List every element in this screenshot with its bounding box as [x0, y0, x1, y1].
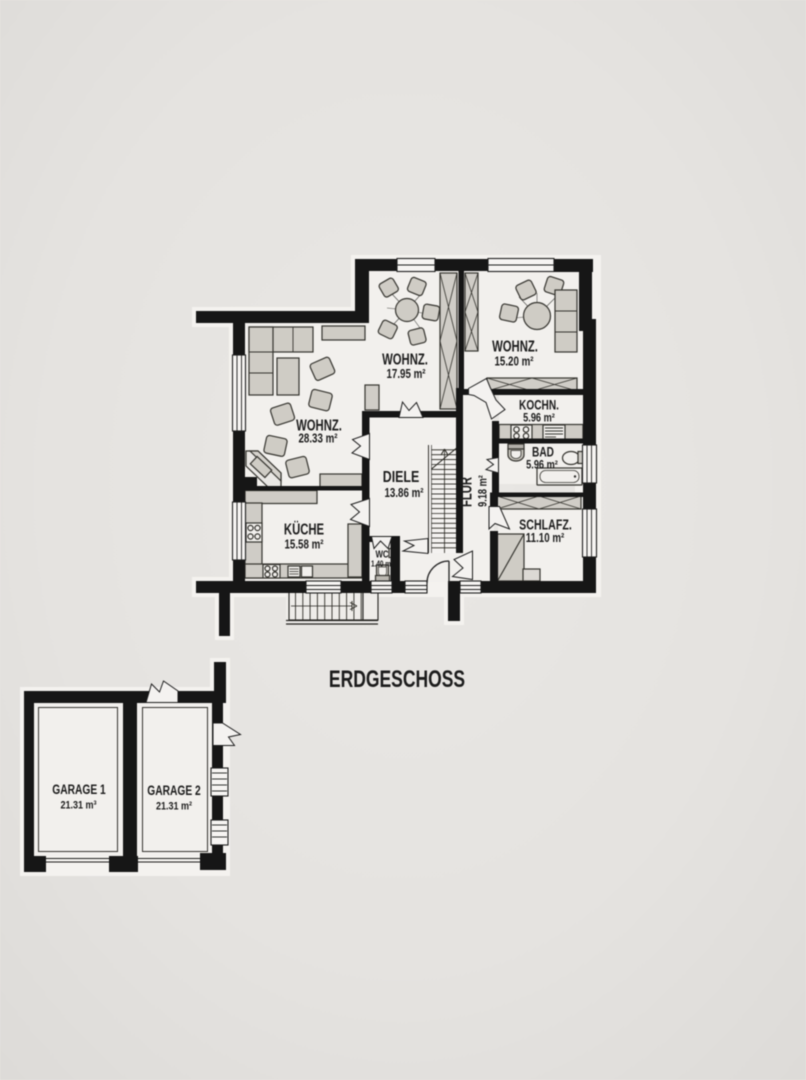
svg-text:11.10 m²: 11.10 m² — [526, 532, 565, 545]
svg-text:BAD: BAD — [532, 444, 554, 460]
svg-text:15.20 m²: 15.20 m² — [495, 355, 534, 368]
svg-text:21.31 m³: 21.31 m³ — [60, 800, 97, 812]
svg-text:1.40 m²: 1.40 m² — [371, 559, 394, 569]
svg-text:FLUR: FLUR — [458, 477, 475, 507]
svg-text:KOCHN.: KOCHN. — [519, 397, 559, 413]
svg-text:WOHNZ.: WOHNZ. — [382, 351, 428, 368]
svg-text:9.18 m²: 9.18 m² — [478, 475, 490, 507]
svg-text:21.31 m²: 21.31 m² — [156, 801, 193, 813]
svg-text:GARAGE 2: GARAGE 2 — [147, 783, 201, 799]
svg-text:GARAGE 1: GARAGE 1 — [52, 782, 106, 798]
svg-text:5.96 m²: 5.96 m² — [526, 460, 558, 472]
svg-text:28.33 m²: 28.33 m² — [299, 432, 338, 445]
svg-text:WOHNZ.: WOHNZ. — [296, 417, 342, 434]
svg-text:17.95 m²: 17.95 m² — [387, 368, 426, 381]
svg-text:DIELE: DIELE — [383, 468, 419, 486]
svg-text:5.96 m²: 5.96 m² — [523, 413, 555, 425]
svg-text:15.58 m²: 15.58 m² — [285, 538, 324, 551]
svg-text:13.86 m²: 13.86 m² — [385, 487, 424, 500]
svg-text:KÜCHE: KÜCHE — [284, 521, 324, 538]
svg-text:SCHLAFZ.: SCHLAFZ. — [519, 516, 572, 533]
svg-text:ERDGESCHOSS: ERDGESCHOSS — [329, 666, 465, 692]
svg-text:WOHNZ.: WOHNZ. — [492, 338, 538, 355]
